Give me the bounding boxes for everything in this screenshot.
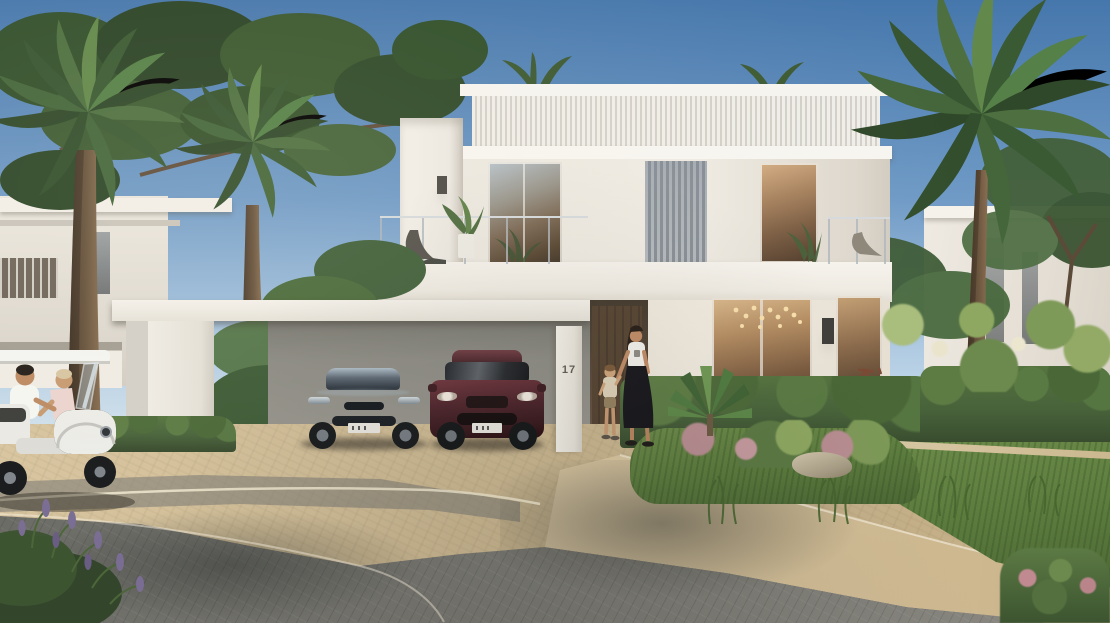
house-number-pillar (556, 326, 582, 452)
car-suv (430, 350, 546, 452)
suv-license-plate (472, 423, 502, 433)
sedan-wheel-left (309, 422, 336, 449)
suv-mirror-right (537, 384, 546, 392)
shrubs-bottom-right (1000, 548, 1110, 623)
villa-exterior-render: 17 (0, 0, 1110, 623)
suv-headlight-left (437, 392, 457, 401)
buggy-headlight (101, 427, 111, 437)
suv-wheel-right (509, 422, 537, 450)
suv-grille (466, 396, 508, 408)
entrance-fan-palm (664, 340, 754, 440)
sedan-grille (344, 402, 384, 410)
suv-mirror-left (428, 384, 437, 392)
plumeria-bushes-right (866, 296, 1110, 392)
sedan-headlight-left (308, 397, 330, 404)
sedan-headlight-right (398, 397, 420, 404)
woman (618, 325, 654, 446)
sedan-wheel-right (392, 422, 419, 449)
carport-beam (112, 300, 590, 321)
buggy-windshield (76, 363, 98, 410)
buggy-seat (0, 408, 26, 422)
suv-wheel-left (437, 422, 465, 450)
sedan-license-plate (348, 423, 380, 433)
suv-headlight-right (517, 392, 537, 401)
house-number-plaque: 17 (557, 364, 581, 378)
car-sedan (300, 366, 430, 452)
sedan-hood-gleam (316, 389, 410, 396)
lavender-bush (0, 488, 172, 623)
ornamental-grasses (700, 446, 1100, 526)
